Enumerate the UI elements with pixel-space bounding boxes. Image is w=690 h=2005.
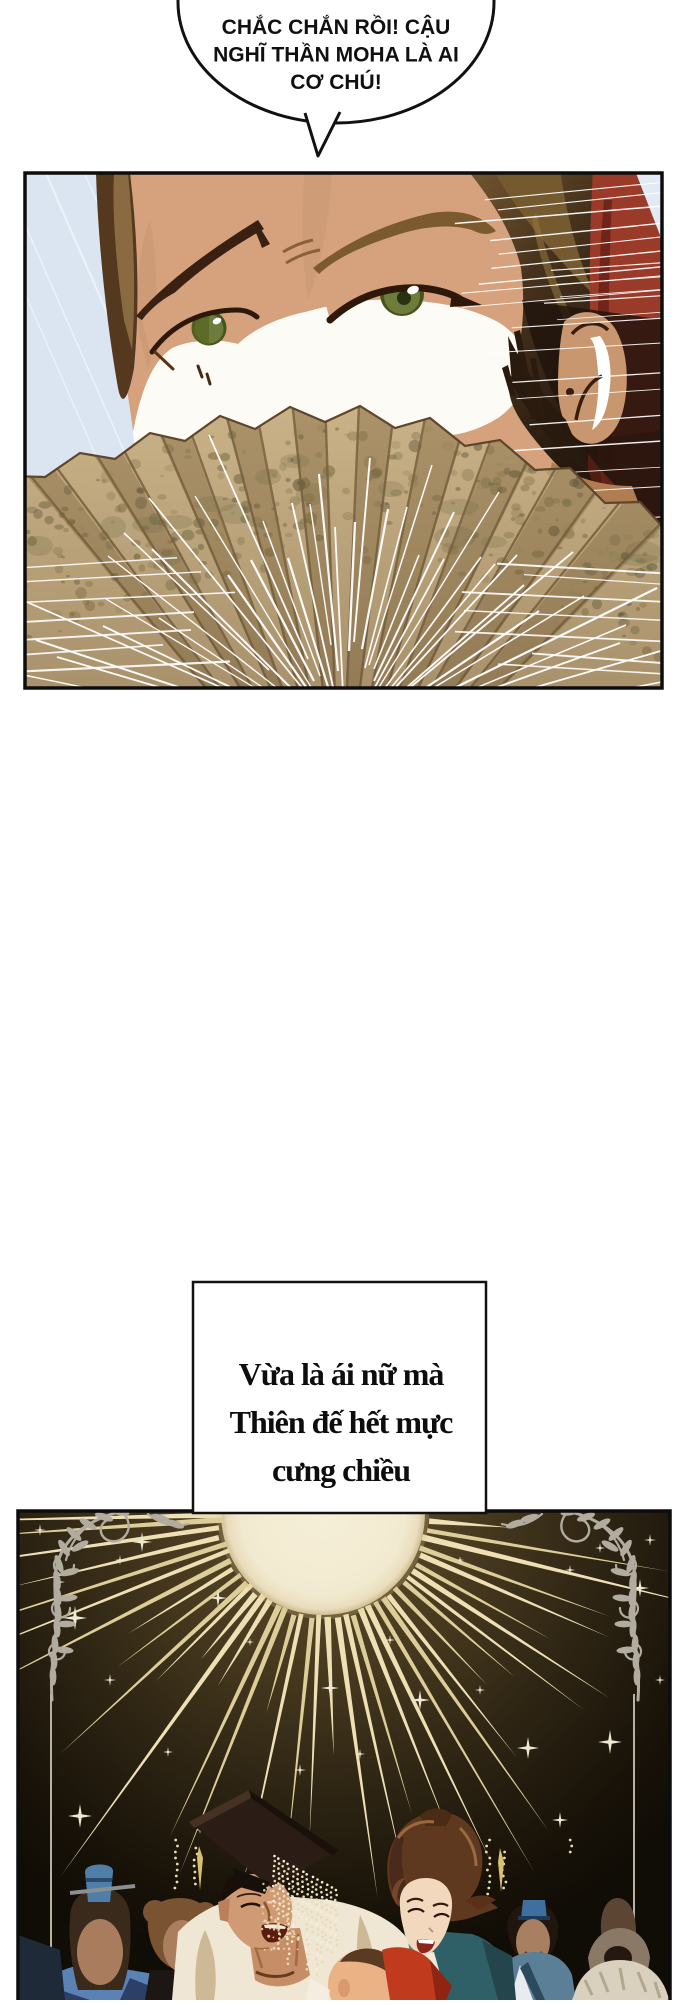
svg-text:NGHĨ THẦN MOHA LÀ AI: NGHĨ THẦN MOHA LÀ AI (213, 44, 459, 67)
svg-text:Thiên đế hết mực: Thiên đế hết mực (230, 1404, 454, 1440)
svg-text:Vừa là ái nữ mà: Vừa là ái nữ mà (239, 1356, 445, 1392)
svg-text:cưng chiều: cưng chiều (272, 1452, 410, 1488)
svg-text:CHẮC CHẮN RỒI! CẬU: CHẮC CHẮN RỒI! CẬU (222, 15, 451, 39)
svg-text:CƠ CHÚ!: CƠ CHÚ! (290, 70, 381, 94)
